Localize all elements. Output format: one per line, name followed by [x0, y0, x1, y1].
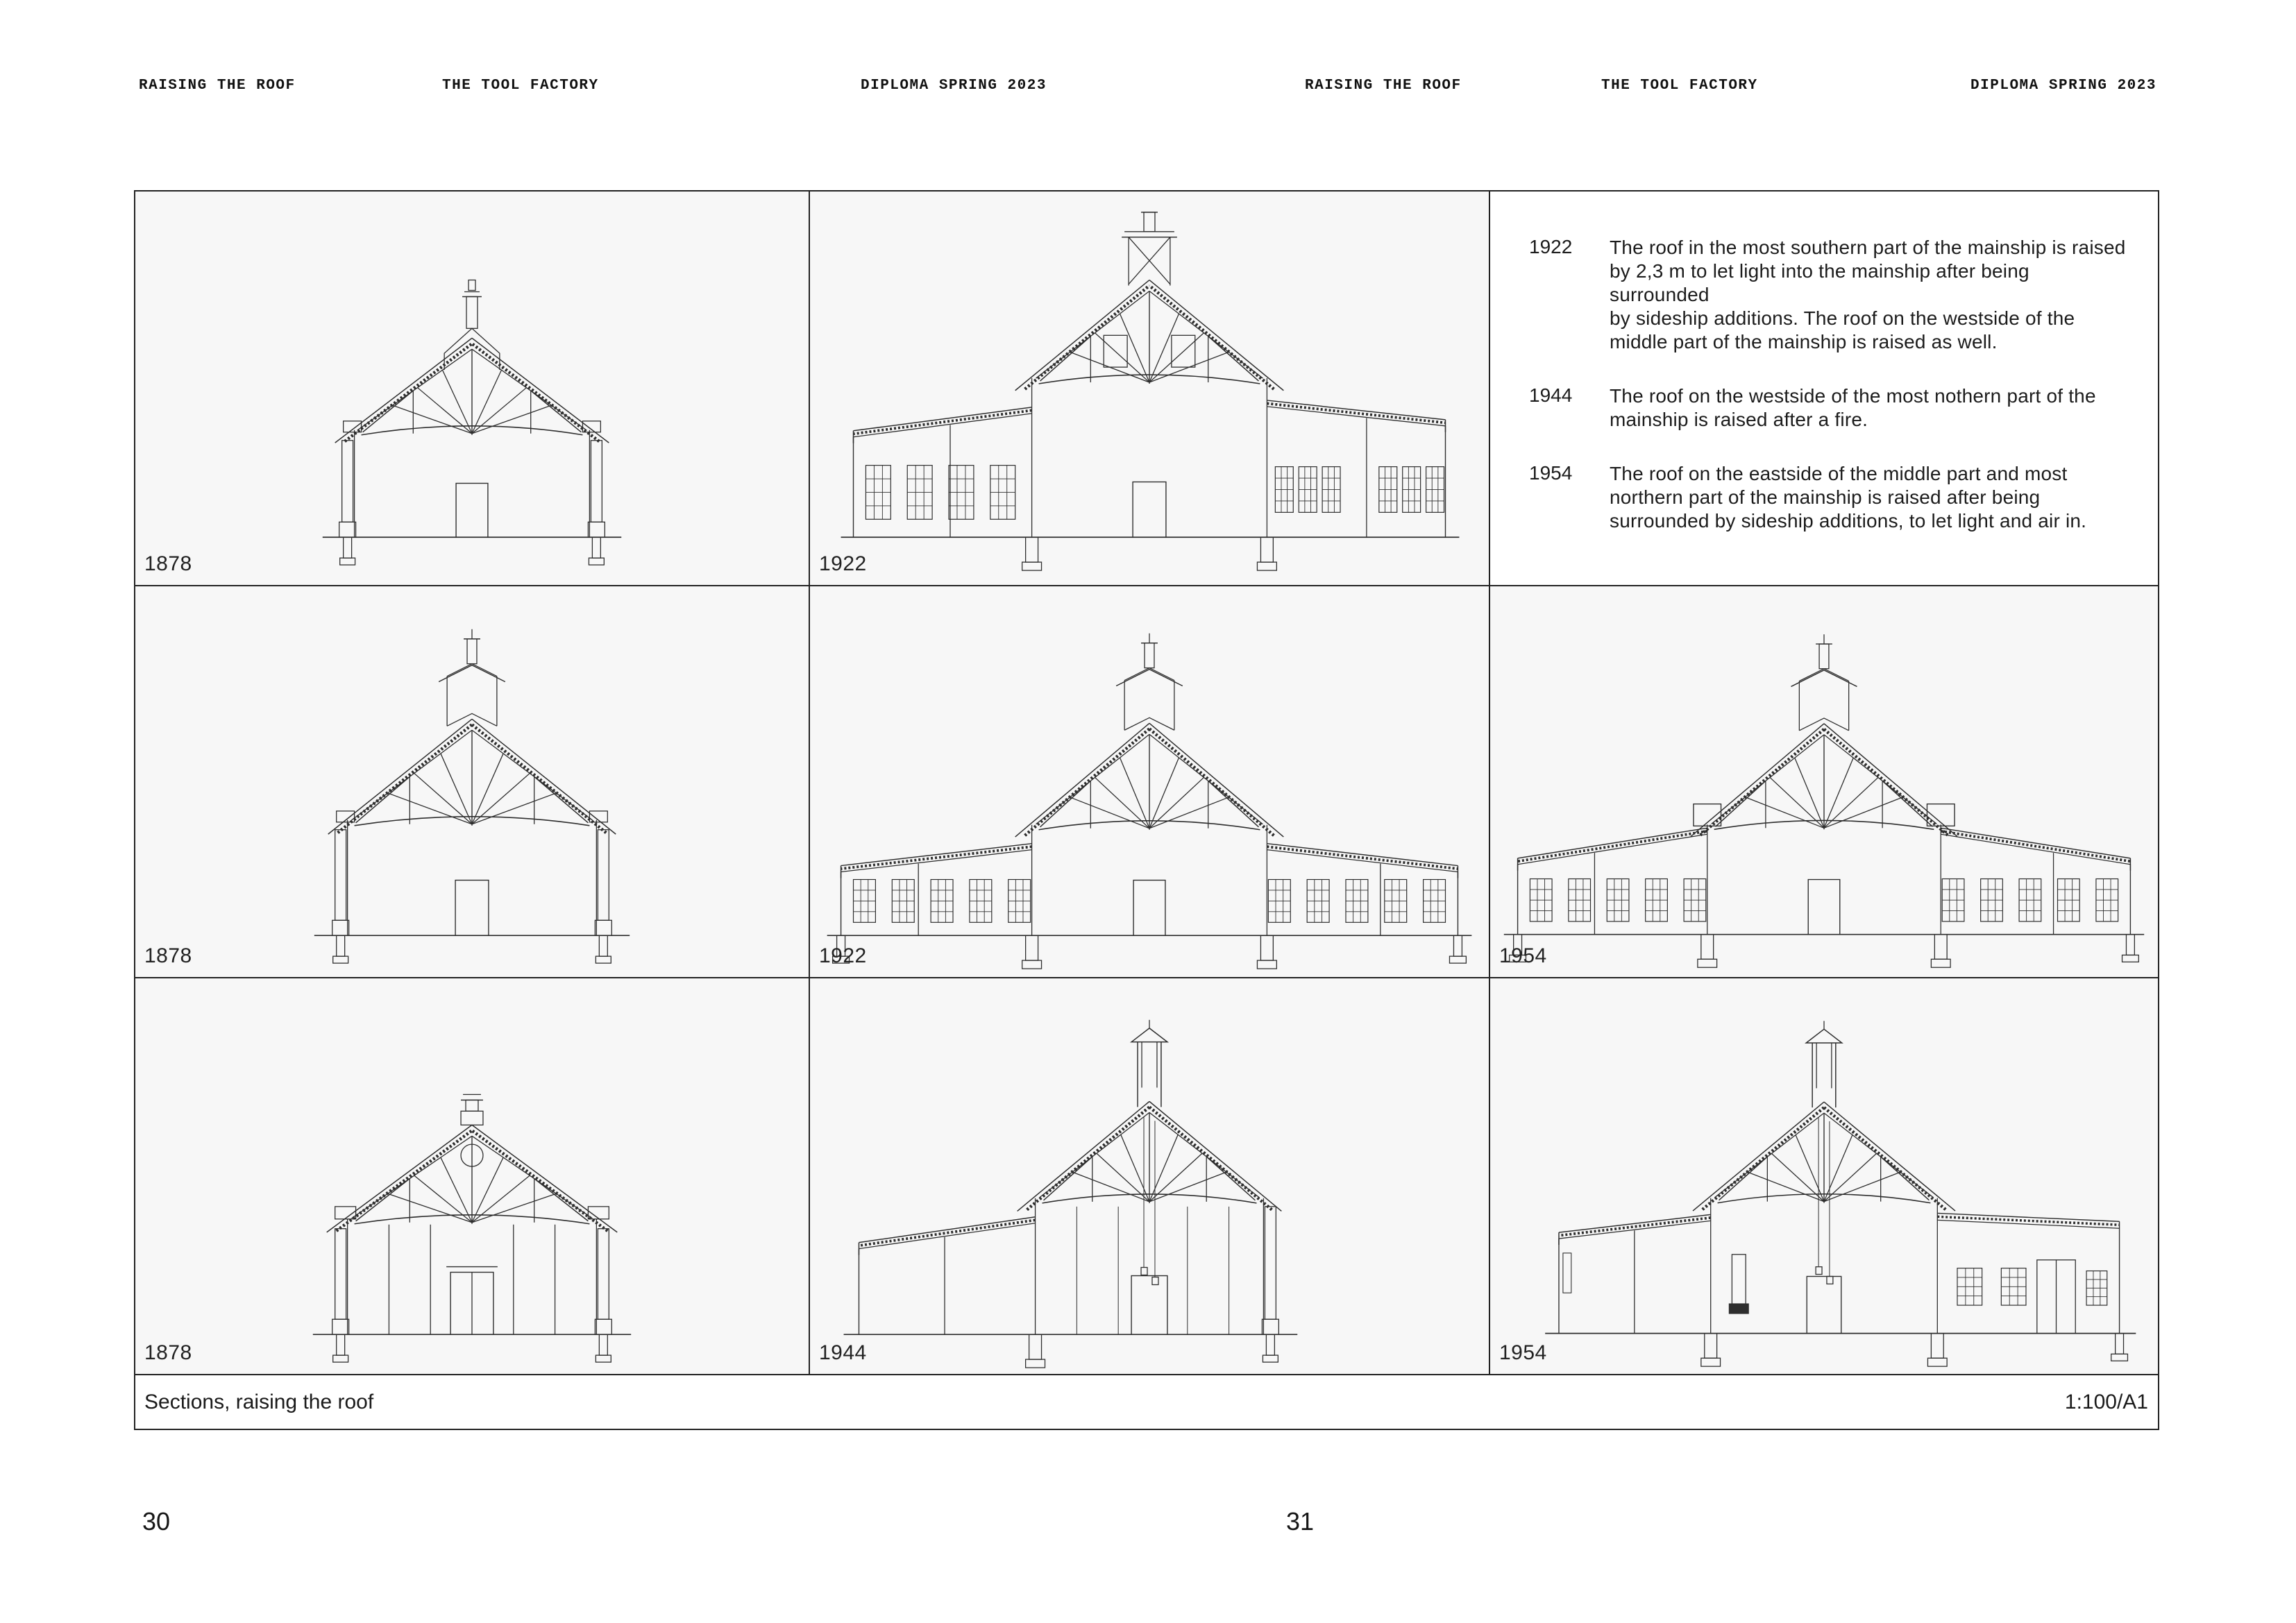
sheet-title: Sections, raising the roof: [144, 1391, 373, 1414]
section-panel-1878-middle: 1878: [135, 586, 810, 978]
year-label: 1922: [819, 552, 867, 576]
running-head-site: THE TOOL FACTORY: [1601, 78, 1758, 94]
sections-grid: 1878 1922 1922 The roof in the most sout…: [134, 190, 2159, 1430]
section-panel-1954-north: 1954: [1490, 978, 2158, 1375]
note-year: 1944: [1529, 384, 1610, 432]
running-head-project: RAISING THE ROOF: [1305, 78, 1462, 94]
note-entry-1954: 1954 The roof on the eastside of the mid…: [1529, 462, 2130, 533]
year-label: 1922: [819, 944, 867, 968]
section-drawing-1922-middle: [810, 586, 1489, 977]
section-drawing-1954-north: [1490, 978, 2158, 1374]
sheet-scale: 1:100/A1: [2065, 1391, 2148, 1414]
year-label: 1878: [144, 552, 192, 576]
section-drawing-1954-middle: [1490, 586, 2158, 977]
section-panel-1878-south: 1878: [135, 192, 810, 586]
section-drawing-1878-south: [135, 192, 809, 585]
running-head-site: THE TOOL FACTORY: [442, 78, 599, 94]
year-label: 1878: [144, 944, 192, 968]
section-drawing-1944-north: [810, 978, 1489, 1374]
year-label: 1954: [1499, 944, 1547, 968]
year-label: 1954: [1499, 1341, 1547, 1365]
section-panel-1922-south: 1922: [810, 192, 1490, 586]
note-text: The roof on the westside of the most not…: [1610, 384, 2130, 432]
year-label: 1878: [144, 1341, 192, 1365]
section-panel-1878-north: 1878: [135, 978, 810, 1375]
section-panel-1922-middle: 1922: [810, 586, 1490, 978]
title-bar: Sections, raising the roof 1:100/A1: [135, 1375, 2158, 1429]
section-panel-1944-north: 1944: [810, 978, 1490, 1375]
year-label: 1944: [819, 1341, 867, 1365]
diploma-sheet-page: { "header": { "items": ["RAISING THE ROO…: [0, 0, 2296, 1623]
page-number-right: 31: [1286, 1507, 1314, 1536]
note-entry-1922: 1922 The roof in the most southern part …: [1529, 236, 2130, 354]
note-year: 1954: [1529, 462, 1610, 533]
running-head-term: DIPLOMA SPRING 2023: [861, 78, 1047, 94]
notes-panel: 1922 The roof in the most southern part …: [1490, 192, 2158, 586]
note-text: The roof in the most southern part of th…: [1610, 236, 2130, 354]
note-text: The roof on the eastside of the middle p…: [1610, 462, 2130, 533]
section-drawing-1922-south: [810, 192, 1489, 585]
running-head-project: RAISING THE ROOF: [139, 78, 296, 94]
section-drawing-1878-middle: [135, 586, 809, 977]
section-panel-1954-middle: 1954: [1490, 586, 2158, 978]
page-number-left: 30: [142, 1507, 170, 1536]
running-head-term: DIPLOMA SPRING 2023: [1970, 78, 2156, 94]
note-entry-1944: 1944 The roof on the westside of the mos…: [1529, 384, 2130, 432]
note-year: 1922: [1529, 236, 1610, 354]
section-drawing-1878-north: [135, 978, 809, 1374]
